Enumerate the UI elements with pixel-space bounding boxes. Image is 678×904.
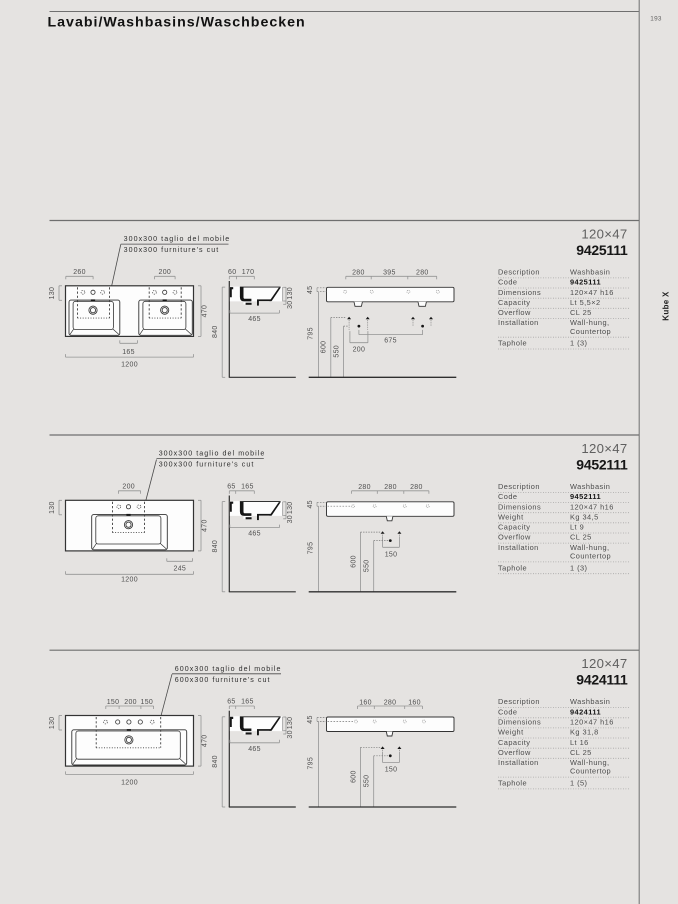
svg-text:1200: 1200 [121,779,138,786]
svg-text:600: 600 [321,341,328,354]
svg-text:30: 30 [287,301,294,309]
svg-text:120×47 h16: 120×47 h16 [570,502,614,511]
svg-text:200: 200 [159,269,172,276]
svg-text:300x300 taglio del mobile: 300x300 taglio del mobile [124,235,231,243]
svg-text:45: 45 [307,500,314,508]
svg-text:280: 280 [416,270,429,277]
svg-text:165: 165 [241,483,254,490]
svg-text:150: 150 [141,699,154,706]
svg-text:200: 200 [124,699,137,706]
svg-text:Installation: Installation [498,543,539,552]
svg-text:795: 795 [307,327,314,340]
svg-text:795: 795 [307,757,314,770]
svg-text:CL 25: CL 25 [570,748,592,757]
svg-text:Taphole: Taphole [498,563,527,572]
svg-text:Dimensions: Dimensions [498,288,541,297]
svg-text:200: 200 [122,484,135,491]
svg-text:CL 25: CL 25 [570,308,592,317]
svg-text:Countertop: Countertop [570,552,611,561]
svg-text:60: 60 [228,269,236,276]
svg-text:165: 165 [241,699,254,706]
svg-text:Kg 34,5: Kg 34,5 [570,512,599,521]
svg-text:120×47 h16: 120×47 h16 [570,288,614,297]
svg-text:465: 465 [248,746,261,753]
svg-text:Dimensions: Dimensions [498,502,541,511]
svg-text:Description: Description [498,697,540,706]
svg-text:Overflow: Overflow [498,533,531,542]
svg-text:Kube X: Kube X [661,291,670,321]
svg-text:9425111: 9425111 [570,278,601,287]
svg-text:470: 470 [202,305,209,318]
svg-text:470: 470 [202,735,209,748]
svg-text:Code: Code [498,492,517,501]
svg-text:600: 600 [350,770,357,783]
svg-text:300x300 furniture's cut: 300x300 furniture's cut [159,461,255,469]
svg-text:260: 260 [73,269,86,276]
svg-text:Countertop: Countertop [570,767,611,776]
svg-text:550: 550 [363,775,370,788]
svg-text:Overflow: Overflow [498,308,531,317]
svg-text:600x300 furniture's cut: 600x300 furniture's cut [175,676,271,684]
svg-text:Kg 31,8: Kg 31,8 [570,728,599,737]
svg-text:Weight: Weight [498,512,524,521]
svg-text:165: 165 [122,349,135,356]
svg-text:Capacity: Capacity [498,298,530,307]
svg-text:160: 160 [408,699,421,706]
svg-text:Washbasin: Washbasin [570,268,610,277]
svg-text:65: 65 [227,699,235,706]
svg-text:9424111: 9424111 [576,672,628,688]
svg-text:600: 600 [350,555,357,568]
svg-text:Taphole: Taphole [498,779,527,788]
svg-text:280: 280 [352,270,365,277]
svg-text:30: 30 [287,730,294,738]
svg-text:150: 150 [385,552,398,559]
svg-text:130: 130 [287,717,294,730]
svg-text:1 (3): 1 (3) [570,339,587,348]
svg-text:Code: Code [498,707,517,716]
svg-text:Countertop: Countertop [570,327,611,336]
svg-text:Weight: Weight [498,728,524,737]
svg-text:CL 25: CL 25 [570,533,592,542]
svg-text:193: 193 [650,16,662,23]
svg-text:300x300 taglio del mobile: 300x300 taglio del mobile [159,450,266,458]
svg-text:120×47: 120×47 [581,226,627,241]
svg-text:130: 130 [49,501,56,514]
svg-text:130: 130 [287,502,294,515]
svg-text:840: 840 [212,755,219,768]
svg-text:840: 840 [212,325,219,338]
svg-text:550: 550 [363,560,370,573]
svg-text:Capacity: Capacity [498,738,530,747]
svg-text:Code: Code [498,278,517,287]
svg-text:45: 45 [307,286,314,294]
svg-text:Description: Description [498,482,540,491]
svg-text:120×47: 120×47 [581,441,627,456]
svg-text:45: 45 [307,715,314,723]
svg-text:9424111: 9424111 [570,707,601,716]
svg-text:470: 470 [202,519,209,532]
svg-text:Dimensions: Dimensions [498,718,541,727]
svg-text:Description: Description [498,268,540,277]
svg-text:170: 170 [242,269,255,276]
svg-text:150: 150 [107,699,120,706]
svg-text:Washbasin: Washbasin [570,482,610,491]
svg-text:9452111: 9452111 [570,492,601,501]
svg-text:130: 130 [49,717,56,730]
svg-text:280: 280 [384,699,397,706]
svg-text:30: 30 [287,515,294,523]
svg-text:Installation: Installation [498,318,539,327]
svg-text:Lt 9: Lt 9 [570,523,584,532]
svg-text:Washbasin: Washbasin [570,697,610,706]
svg-text:550: 550 [333,345,340,358]
svg-text:130: 130 [287,287,294,300]
svg-text:1200: 1200 [121,577,138,584]
svg-text:120×47 h16: 120×47 h16 [570,718,614,727]
svg-text:395: 395 [383,270,396,277]
svg-text:245: 245 [174,566,187,573]
svg-text:300x300 furniture's cut: 300x300 furniture's cut [124,246,220,254]
svg-text:9425111: 9425111 [576,242,628,258]
svg-text:9452111: 9452111 [576,456,628,472]
svg-text:Capacity: Capacity [498,523,530,532]
svg-text:Lt 16: Lt 16 [570,738,589,747]
svg-text:795: 795 [307,542,314,555]
svg-text:Lt 5,5×2: Lt 5,5×2 [570,298,601,307]
svg-text:465: 465 [248,316,261,323]
svg-text:1200: 1200 [121,361,138,368]
svg-text:1 (3): 1 (3) [570,563,587,572]
svg-text:120×47: 120×47 [581,656,627,671]
svg-text:465: 465 [248,531,261,538]
svg-text:1 (5): 1 (5) [570,779,587,788]
svg-text:Overflow: Overflow [498,748,531,757]
svg-text:675: 675 [384,338,397,345]
svg-text:160: 160 [359,699,372,706]
svg-text:280: 280 [410,484,423,491]
svg-text:Lavabi/Washbasins/Waschbecken: Lavabi/Washbasins/Waschbecken [48,15,306,31]
svg-text:600x300 taglio del mobile: 600x300 taglio del mobile [175,665,282,673]
svg-text:200: 200 [353,347,366,354]
svg-text:130: 130 [49,287,56,300]
svg-text:280: 280 [384,484,397,491]
svg-text:Taphole: Taphole [498,339,527,348]
svg-text:840: 840 [212,540,219,553]
svg-text:150: 150 [385,767,398,774]
svg-text:280: 280 [358,484,371,491]
svg-text:65: 65 [227,483,235,490]
svg-text:Installation: Installation [498,758,539,767]
